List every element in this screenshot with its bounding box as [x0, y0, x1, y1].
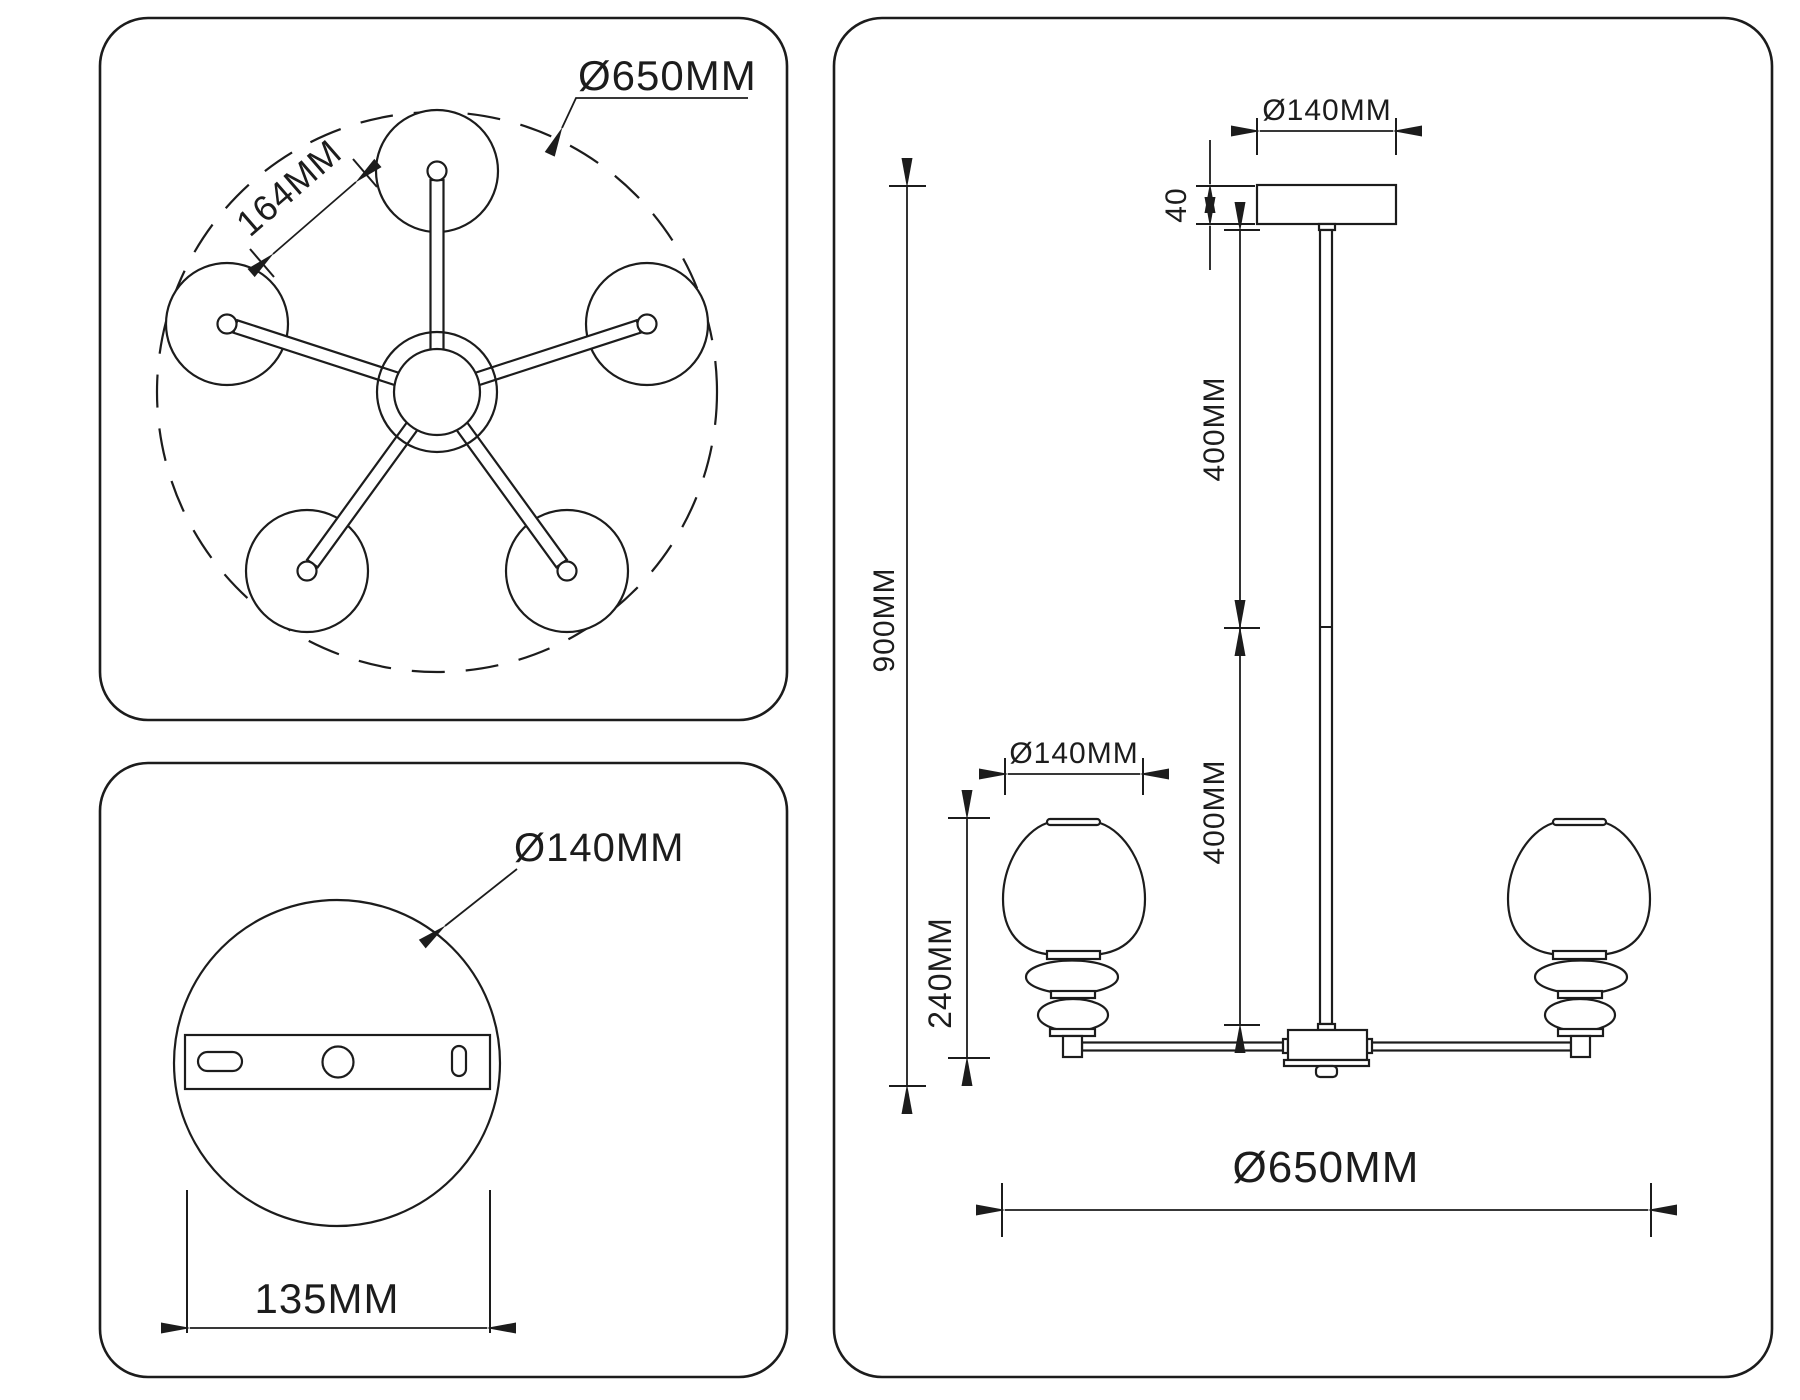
shade-diameter-label: Ø140MM: [1009, 737, 1138, 770]
dimension-shade-diameter: Ø140MM: [1005, 737, 1143, 795]
shade-ring: [1051, 991, 1095, 998]
hub-body: [1283, 1030, 1372, 1077]
bottom-view-panel: Ø140MM 135MM: [100, 763, 787, 1377]
ceiling-canopy: [1257, 185, 1396, 224]
shade-socket-block: [1063, 1036, 1082, 1057]
shade-neck-ring: [1047, 951, 1100, 959]
canopy-and-rod: [1257, 185, 1396, 1030]
technical-drawing-sheet: 164MM Ø650MM Ø140MM 135MM: [0, 0, 1800, 1400]
dimension-overall-width: Ø650MM: [1002, 1143, 1651, 1237]
leader-line: [562, 98, 748, 128]
plate-diameter-label: Ø140MM: [514, 826, 685, 870]
dimension-plate-diameter: Ø140MM: [445, 826, 685, 926]
bracket-body: [185, 1035, 490, 1089]
dimension-tick: [353, 159, 377, 187]
socket-lower-left: [298, 562, 317, 581]
hub-knob: [1316, 1066, 1337, 1077]
dimension-upper-rod: 400MM: [1198, 230, 1260, 628]
hub-block: [1288, 1030, 1367, 1060]
overall-diameter-label: Ø650MM: [578, 52, 757, 99]
socket-upper-left: [218, 315, 237, 334]
shade-top-cap: [1047, 819, 1100, 825]
shade-middle-disc: [1026, 961, 1118, 994]
dimension-lower-rod: 400MM: [1198, 629, 1260, 1025]
overall-height-label: 900MM: [868, 567, 901, 672]
mounting-bracket: [185, 1035, 490, 1089]
lamp-dimension-drawing: 164MM Ø650MM Ø140MM 135MM: [0, 0, 1800, 1400]
shade-body: [1003, 820, 1145, 954]
bracket-width-label: 135MM: [254, 1275, 399, 1322]
dimension-overall-height: 900MM: [868, 186, 926, 1086]
dimension-bracket-width: 135MM: [187, 1190, 490, 1333]
side-view-panel: 900MM Ø140MM 40 400MM 400MM: [834, 18, 1772, 1377]
canopy-diameter-label: Ø140MM: [1262, 94, 1391, 127]
socket-upper-right: [638, 315, 657, 334]
top-view-panel: 164MM Ø650MM: [100, 18, 787, 720]
dimension-shade-height: 240MM: [922, 818, 990, 1058]
dimension-overall-diameter: Ø650MM: [562, 52, 757, 128]
socket-lower-right: [558, 562, 577, 581]
upper-rod-label: 400MM: [1198, 376, 1231, 481]
glass-shade-right: [1508, 819, 1650, 1057]
leader-line: [445, 869, 517, 926]
canopy-height-label: 40: [1160, 187, 1193, 222]
glass-shade-left: [1003, 819, 1145, 1057]
lamp-arm: [431, 180, 444, 351]
lower-rod-label: 400MM: [1198, 759, 1231, 864]
shade-height-label: 240MM: [922, 917, 958, 1029]
shade-lower-disc: [1038, 999, 1108, 1031]
hub-inner-circle: [394, 349, 480, 435]
overall-width-label: Ø650MM: [1233, 1143, 1420, 1192]
socket-top: [428, 162, 447, 181]
dimension-shade-gap: 164MM: [228, 131, 377, 277]
dimension-canopy-diameter: Ø140MM: [1257, 94, 1396, 155]
